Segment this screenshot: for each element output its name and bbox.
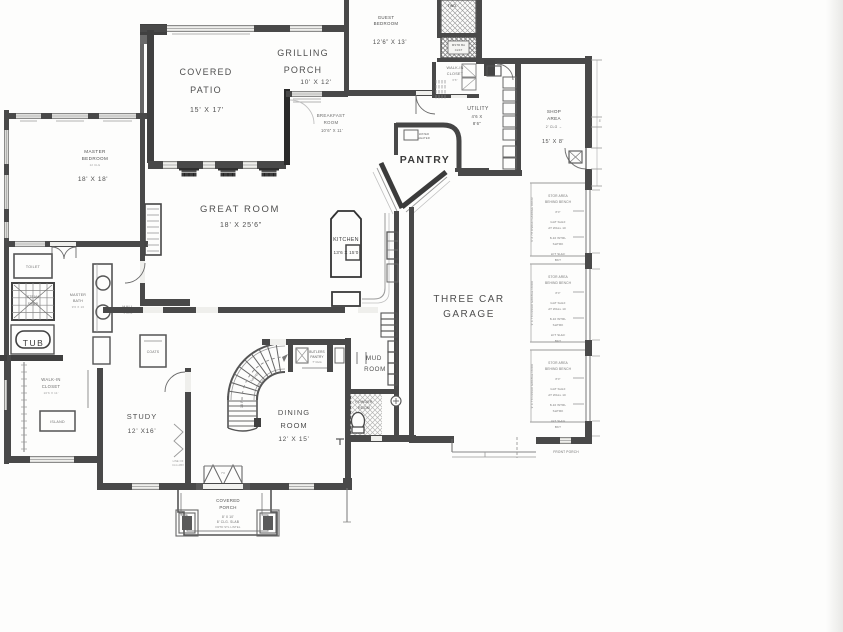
svg-text:GAT SHLF: GAT SHLF [550, 301, 565, 305]
svg-text:BEDROOM: BEDROOM [374, 21, 399, 26]
svg-text:FRONT PORCH: FRONT PORCH [553, 450, 579, 454]
svg-text:STEAM: STEAM [27, 295, 39, 299]
svg-text:12’ X16’: 12’ X16’ [128, 428, 157, 435]
svg-text:16 R: 16 R [240, 400, 244, 408]
svg-text:FRTD STL LINTEL: FRTD STL LINTEL [216, 525, 241, 529]
svg-text:BATH: BATH [73, 299, 83, 303]
svg-text:HEATER: HEATER [418, 136, 430, 140]
svg-text:GARAGE: GARAGE [443, 309, 495, 320]
svg-text:9' X 7'8 OVRHD GARAGE DOOR: 9' X 7'8 OVRHD GARAGE DOOR [530, 364, 534, 409]
svg-text:12’ X 15’: 12’ X 15’ [278, 436, 309, 443]
svg-text:ROOM: ROOM [358, 406, 370, 410]
svg-text:9' X 7'8 OVRHD GARAGE DOOR: 9' X 7'8 OVRHD GARAGE DOOR [530, 197, 534, 242]
svg-text:UTILITY: UTILITY [467, 106, 489, 112]
svg-text:GUEST: GUEST [378, 15, 395, 20]
svg-text:8-10 WTRL: 8-10 WTRL [550, 236, 566, 240]
svg-text:10'6 X 11': 10'6 X 11' [44, 391, 59, 395]
svg-text:TWO: TWO [448, 4, 457, 8]
svg-text:18' X 18': 18' X 18' [78, 176, 108, 183]
svg-text:8'0": 8'0" [555, 291, 560, 295]
svg-text:AT WALL 10: AT WALL 10 [548, 226, 566, 230]
svg-text:BUTLERS: BUTLERS [309, 350, 324, 354]
svg-text:MUD: MUD [366, 355, 382, 362]
svg-text:SHWR: SHWR [28, 302, 39, 306]
svg-text:4'6 X: 4'6 X [472, 114, 483, 119]
svg-text:7'0: 7'0 [221, 471, 225, 475]
svg-text:ROOM: ROOM [324, 120, 339, 125]
svg-text:GRILLING: GRILLING [277, 48, 329, 58]
svg-text:COVERED: COVERED [216, 498, 240, 503]
svg-text:STOR AREA: STOR AREA [548, 275, 568, 279]
svg-text:STOR AREA: STOR AREA [548, 361, 568, 365]
svg-text:PORCH: PORCH [219, 505, 236, 510]
svg-text:7' CLG: 7' CLG [312, 360, 321, 364]
svg-text:ROOM: ROOM [280, 421, 307, 430]
svg-text:BEHIND BENCH: BEHIND BENCH [545, 200, 572, 204]
svg-text:BKT: BKT [555, 258, 561, 262]
svg-text:WALK-IN: WALK-IN [41, 377, 60, 382]
svg-text:8-10 WTRL: 8-10 WTRL [550, 403, 566, 407]
svg-text:SHTRK: SHTRK [553, 323, 564, 327]
svg-text:BKT: BKT [555, 339, 561, 343]
svg-text:STOR AREA: STOR AREA [548, 194, 568, 198]
svg-text:PATIO: PATIO [190, 85, 222, 95]
svg-text:BEDROOM: BEDROOM [82, 156, 109, 161]
svg-text:PANTRY: PANTRY [400, 154, 450, 166]
svg-text:THREE CAR: THREE CAR [433, 294, 504, 305]
svg-text:CLST: CLST [455, 48, 463, 52]
svg-text:AT WALL 10: AT WALL 10 [548, 307, 566, 311]
svg-text:BREAKFAST: BREAKFAST [317, 113, 346, 118]
svg-text:6'6": 6'6" [452, 78, 457, 82]
svg-text:CLOSET: CLOSET [447, 72, 464, 76]
svg-text:8' CLG. SLAB: 8' CLG. SLAB [217, 520, 239, 524]
svg-text:WALK-IN: WALK-IN [446, 66, 463, 70]
svg-text:MSTR BA: MSTR BA [452, 43, 465, 47]
svg-text:PANTRY: PANTRY [310, 355, 324, 359]
svg-text:LFT SHLF: LFT SHLF [551, 419, 566, 423]
svg-text:PORCH: PORCH [284, 65, 323, 75]
svg-text:8'6": 8'6" [473, 121, 481, 126]
svg-text:BKT: BKT [555, 425, 561, 429]
svg-text:15' X 17': 15' X 17' [190, 107, 224, 114]
svg-text:10' X 12': 10' X 12' [300, 79, 331, 86]
svg-text:AT WALL 10: AT WALL 10 [548, 393, 566, 397]
svg-text:CLOSET: CLOSET [42, 384, 61, 389]
svg-text:SHTRK: SHTRK [553, 409, 564, 413]
svg-text:ISLAND: ISLAND [50, 420, 65, 424]
svg-text:COVERED: COVERED [180, 67, 233, 77]
svg-text:9'6 X 16: 9'6 X 16 [72, 305, 85, 309]
svg-text:9' X 7'8 OVRHD GARAGE DOOR: 9' X 7'8 OVRHD GARAGE DOOR [530, 281, 534, 326]
svg-text:8-10 WTRL: 8-10 WTRL [550, 317, 566, 321]
svg-text:MASTER: MASTER [70, 293, 86, 297]
svg-text:BEHIND BENCH: BEHIND BENCH [545, 367, 572, 371]
svg-text:COATS: COATS [147, 350, 160, 354]
svg-text:SHOP: SHOP [547, 109, 561, 114]
svg-text:8'0": 8'0" [555, 377, 560, 381]
svg-text:12’6” X 13’: 12’6” X 13’ [373, 40, 407, 46]
svg-text:12 CLG: 12 CLG [90, 163, 101, 167]
svg-text:DINING: DINING [278, 408, 310, 417]
svg-text:10’6” X 11’: 10’6” X 11’ [321, 128, 343, 133]
svg-text:GREAT ROOM: GREAT ROOM [200, 204, 280, 215]
svg-text:13'6 X 15'0: 13'6 X 15'0 [334, 250, 359, 255]
svg-text:GAT SHLF: GAT SHLF [550, 387, 565, 391]
svg-text:TUB: TUB [23, 338, 45, 348]
svg-text:MASTER: MASTER [84, 149, 106, 154]
svg-text:8': 8' [599, 119, 602, 123]
svg-text:2' CLG →: 2' CLG → [546, 125, 562, 129]
svg-text:STUDY: STUDY [127, 412, 157, 421]
svg-text:LFT SHLF: LFT SHLF [551, 333, 566, 337]
svg-text:8'0": 8'0" [555, 210, 560, 214]
svg-text:KITCHEN: KITCHEN [333, 237, 359, 243]
svg-text:LINE OF: LINE OF [173, 459, 184, 463]
svg-text:TOILET: TOILET [26, 265, 41, 269]
svg-text:GAT SHLF: GAT SHLF [550, 220, 565, 224]
svg-text:LFT SHLF: LFT SHLF [551, 252, 566, 256]
svg-text:POWDER: POWDER [355, 400, 373, 404]
svg-text:SHTRK: SHTRK [553, 242, 564, 246]
svg-text:18’ X 25’6”: 18’ X 25’6” [220, 222, 262, 229]
svg-text:8' X 10': 8' X 10' [222, 515, 234, 519]
svg-text:AREA: AREA [547, 116, 561, 121]
svg-text:15' X 8': 15' X 8' [542, 139, 564, 145]
svg-text:CLG ABV: CLG ABV [172, 463, 184, 467]
svg-text:BEHIND BENCH: BEHIND BENCH [545, 281, 572, 285]
svg-text:ROOM: ROOM [364, 366, 386, 373]
